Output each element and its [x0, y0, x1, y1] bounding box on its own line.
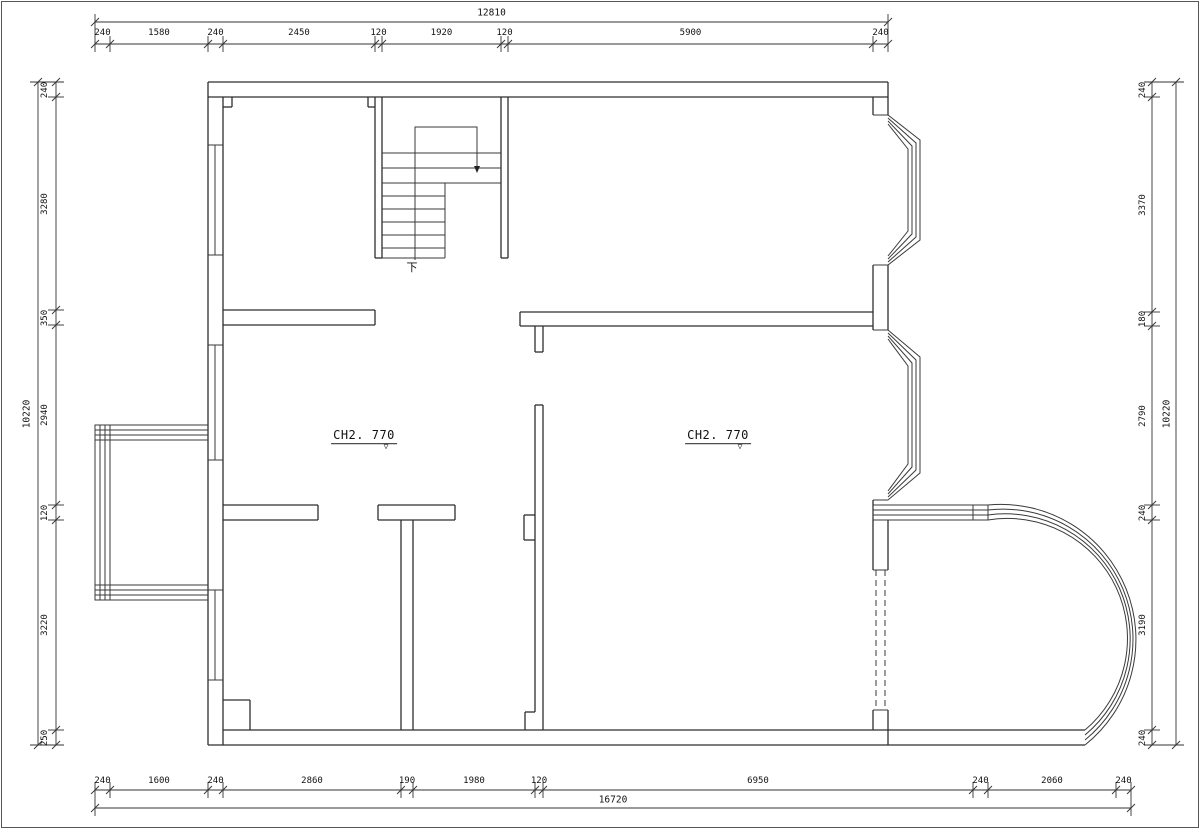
windows-group — [208, 115, 888, 710]
floor-plan-linework — [0, 0, 1200, 829]
floor-plan-sheet: 2401580240245012019201205900240128102401… — [0, 0, 1200, 829]
stairs-group — [382, 127, 501, 260]
sheet-border — [2, 2, 1199, 828]
stair-arrow-icon — [474, 166, 480, 173]
dimensions-group — [30, 14, 1184, 816]
left-balcony-group — [95, 425, 208, 600]
walls-group — [208, 82, 1085, 745]
bay-windows-group — [888, 115, 920, 500]
curved-balcony-group — [873, 504, 1136, 745]
stair-handrail — [415, 127, 477, 153]
